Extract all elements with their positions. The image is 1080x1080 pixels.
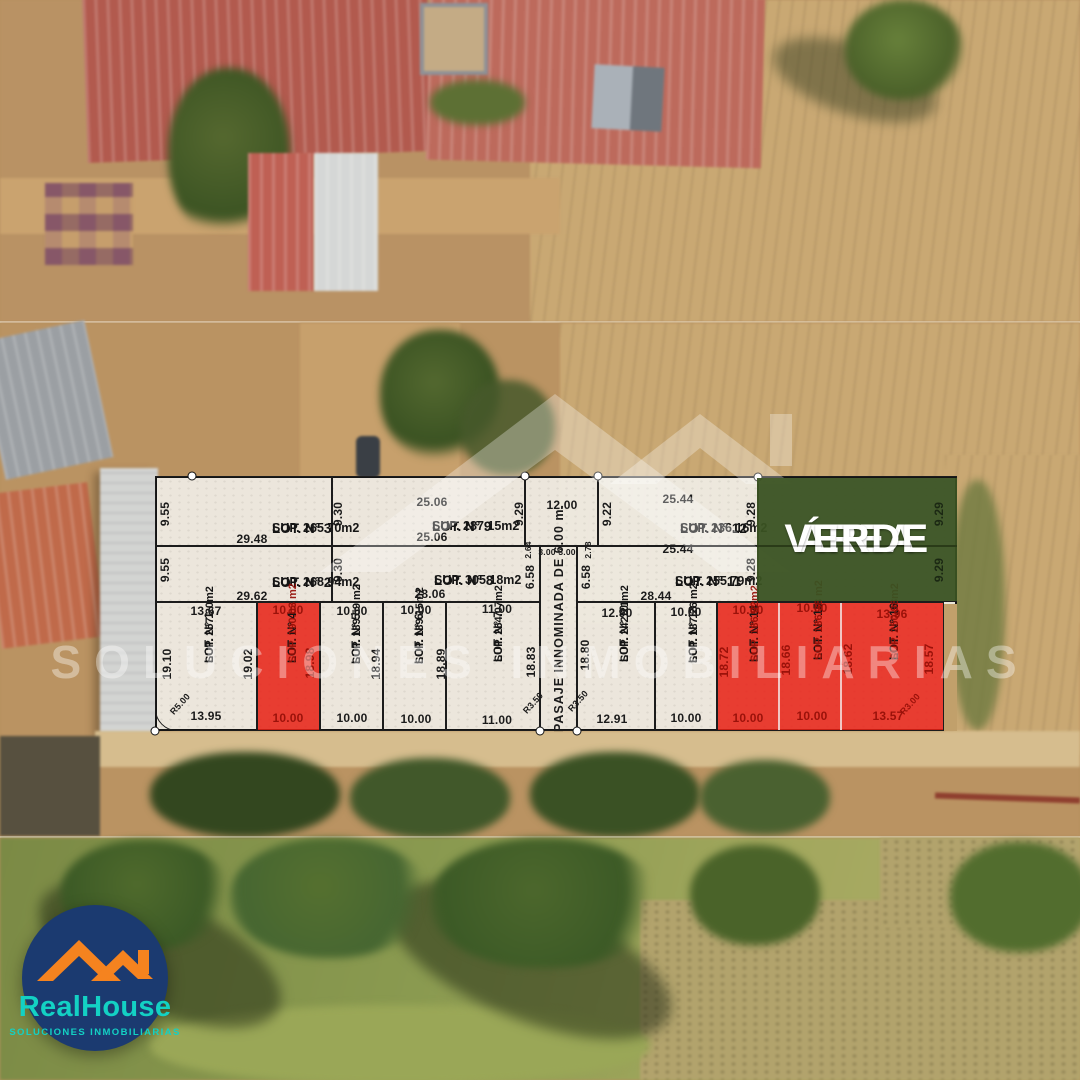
- dim-lot3-left: 9.55: [158, 502, 172, 526]
- photo-checker-patio: [45, 183, 133, 265]
- photo-tree-b2: [230, 838, 430, 958]
- dim-lot10-top: 12.90: [601, 606, 632, 620]
- photo-redwhite-building-red: [248, 153, 314, 291]
- dim-green-right-bottom: 9.29: [932, 558, 946, 582]
- dim-lot14-top: 10.00: [732, 603, 763, 617]
- dim-lot7-bottom: 11.00: [482, 713, 512, 727]
- watermark-tagline: SOLUCIONES INMOBILIARIAS: [20, 635, 1060, 689]
- dim-lot13-top: 10.00: [670, 605, 701, 619]
- area-verde-divider: [757, 545, 957, 547]
- boundary-node: [188, 472, 197, 481]
- photo-bush-strip-right: [950, 480, 1005, 730]
- boundary-node: [573, 727, 582, 736]
- photo-tree-row-1: [150, 752, 340, 837]
- photo-orange-tile-house: [0, 482, 106, 649]
- dim-lot1-bottom: 13.95: [190, 709, 221, 723]
- dim-lot6-bottom: 10.00: [400, 712, 431, 726]
- dim-lot16-top: 13.96: [876, 607, 907, 621]
- area-verde-line2: VERDE: [784, 517, 929, 562]
- photo-redwhite-building-white: [314, 153, 378, 291]
- photo-tree-b3: [430, 838, 660, 968]
- dim-lot3-bottom: 29.48: [236, 532, 267, 546]
- boundary-node: [151, 727, 160, 736]
- photo-dark-yard-left: [0, 736, 100, 836]
- logo-tagline-text: SOLUCIONES INMOBILIARIAS: [9, 1027, 180, 1038]
- area-verde-overlay: ÁREA VERDE: [757, 478, 957, 601]
- dim-lot2-bottom: 29.62: [236, 589, 267, 603]
- photo-tree-row-4: [700, 760, 830, 835]
- house-roof-icon: [35, 927, 155, 983]
- photo-walled-pen: [420, 3, 488, 75]
- aerial-lot-plan-image: LOT. N° 3SUP. 265.70m2 LOT. N° 2SUP. 268…: [0, 0, 1080, 1080]
- dim-green-right-top: 9.29: [932, 502, 946, 526]
- dim-lot5-bottom: 10.00: [336, 711, 367, 725]
- realhouse-logo: RealHouse SOLUCIONES INMOBILIARIAS: [22, 905, 168, 1051]
- dim-lot13-bottom: 10.00: [670, 711, 701, 725]
- logo-brand-text: RealHouse: [19, 991, 172, 1024]
- dim-lot7-top: 11.00: [482, 602, 512, 616]
- photo-tree-b5: [950, 842, 1080, 952]
- photo-shrubs-top: [430, 80, 525, 125]
- photo-shed: [591, 64, 664, 132]
- watermark-roof-icon: [300, 382, 810, 592]
- photo-tree-row-3: [530, 752, 700, 837]
- dim-lot2-left: 9.55: [158, 558, 172, 582]
- dim-lot5-top: 10.00: [336, 604, 367, 618]
- photo-tree-top-right: [845, 0, 963, 100]
- dim-lot4-bottom: 10.00: [272, 711, 303, 725]
- dim-lot14-bottom: 10.00: [732, 711, 763, 725]
- photo-tree-b4: [690, 845, 820, 945]
- dim-lot15-bottom: 10.00: [796, 709, 827, 723]
- dim-lot4-top: 10.00: [272, 603, 303, 617]
- dim-lot6-top: 10.00: [400, 603, 431, 617]
- photo-tree-row-2: [350, 758, 510, 838]
- dim-lot15-top: 10.00: [796, 601, 827, 615]
- dim-lot10-bottom: 12.91: [596, 712, 627, 726]
- dim-lot1-top: 13.67: [190, 604, 221, 618]
- boundary-node: [536, 727, 545, 736]
- photo-long-building: [100, 468, 158, 734]
